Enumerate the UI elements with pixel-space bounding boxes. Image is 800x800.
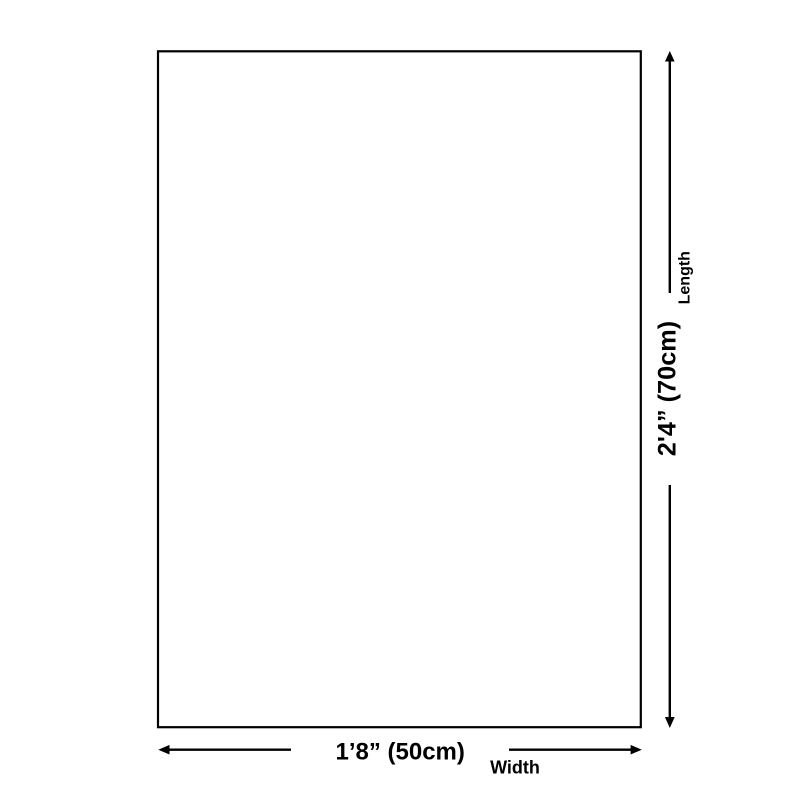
- svg-text:2'4” (70cm): 2'4” (70cm): [654, 321, 682, 456]
- svg-text:Length: Length: [677, 251, 694, 304]
- svg-text:1’8” (50cm): 1’8” (50cm): [335, 738, 464, 765]
- svg-text:Width: Width: [490, 758, 540, 778]
